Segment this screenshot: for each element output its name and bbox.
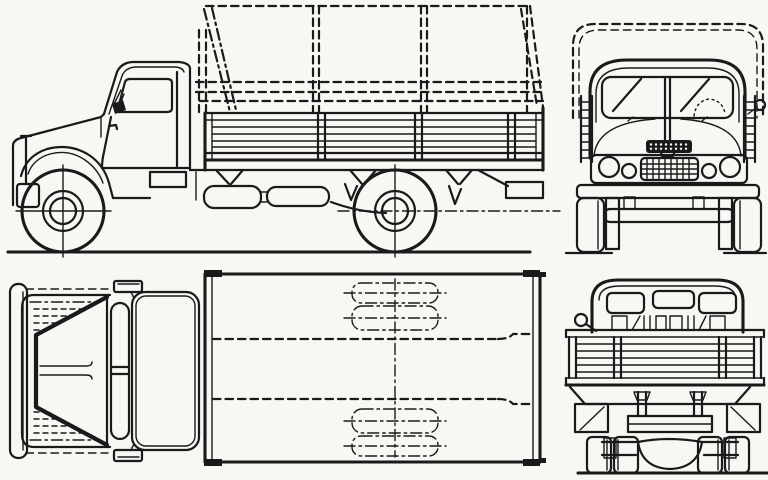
windshield-top <box>111 303 129 439</box>
door-window <box>117 79 172 112</box>
front-tire-left <box>577 198 604 252</box>
frame-leg-left <box>606 198 619 249</box>
door-handle <box>109 125 117 129</box>
grille-mesh <box>642 159 697 179</box>
roof-inner-line <box>122 67 184 76</box>
interior-box-right <box>710 316 725 330</box>
plan-view <box>10 270 546 466</box>
cab-roof-top <box>132 292 199 450</box>
blueprint-figure <box>0 0 768 480</box>
interior-box-left <box>612 316 627 330</box>
bed-outline-top <box>205 274 540 462</box>
canvas-tilt-dashed <box>196 6 543 113</box>
tilt-bows <box>199 6 527 113</box>
cargo-bed-side <box>190 108 543 170</box>
dotted-patch <box>694 99 725 116</box>
rear-window-center <box>653 291 694 308</box>
front-wheel <box>16 165 111 257</box>
wipers <box>613 79 709 111</box>
frame-braces <box>216 170 508 186</box>
bed-top-rail <box>566 330 764 337</box>
blueprint-svg <box>0 0 768 480</box>
rear-window-right <box>699 293 736 313</box>
front-wheel-centerlines <box>30 302 97 440</box>
rear-cab <box>575 280 743 332</box>
cab-roof-rear <box>592 280 743 332</box>
hood-creases <box>40 362 92 379</box>
front-wheel-tread-dashes <box>34 309 84 433</box>
tilt-side-rails <box>196 82 543 101</box>
lamp-right-small <box>702 164 716 178</box>
headlight-right <box>720 157 740 177</box>
cab-step <box>150 172 186 187</box>
front-tire-right <box>734 198 761 252</box>
fender-hidden-edges <box>26 289 108 453</box>
underframe-panel <box>570 387 750 404</box>
front-bumper <box>577 185 759 198</box>
fuel-tank <box>204 186 261 208</box>
spring-hanger-caps <box>634 392 706 400</box>
intake-grille <box>646 140 692 153</box>
cab-roof-inner <box>136 296 195 446</box>
cab-and-hood <box>13 62 196 207</box>
mudguard-braces <box>580 407 755 430</box>
rear-step-box <box>506 182 543 198</box>
interior-box-mid2 <box>670 316 682 330</box>
front-running-gear <box>566 197 766 253</box>
rear-window-left <box>607 293 644 313</box>
bed-corner-brackets <box>204 270 546 466</box>
rear-bed <box>566 330 764 385</box>
headlight-left <box>599 157 619 177</box>
mirror-top <box>114 281 142 292</box>
plan-bed <box>204 270 546 466</box>
bumper-top <box>10 284 27 458</box>
hood-outline-thick <box>36 297 107 445</box>
tailgate-slats <box>576 344 754 372</box>
frame-leg-right <box>719 198 732 249</box>
plan-front-end <box>10 281 199 461</box>
differential-bowl <box>638 442 702 469</box>
wheel-crosshair <box>16 165 111 257</box>
windshield-divider <box>665 77 670 118</box>
chassis-rails-hidden <box>213 334 533 404</box>
air-tank <box>267 187 329 206</box>
front-face <box>577 155 759 198</box>
front-axle-bar <box>604 209 734 222</box>
rear-running-gear <box>570 387 768 473</box>
cab-interior-lines <box>632 316 706 330</box>
rear-view <box>566 280 768 473</box>
interior-box-mid1 <box>656 316 666 330</box>
mirror-bottom <box>114 450 142 461</box>
windshield <box>602 77 733 118</box>
bed-slats <box>212 127 536 147</box>
windshield-split <box>111 367 129 374</box>
bed-inner-edges <box>212 274 533 462</box>
tilt-front-slant <box>204 8 236 112</box>
side-view <box>8 6 560 257</box>
lamp-left-small <box>622 164 636 178</box>
